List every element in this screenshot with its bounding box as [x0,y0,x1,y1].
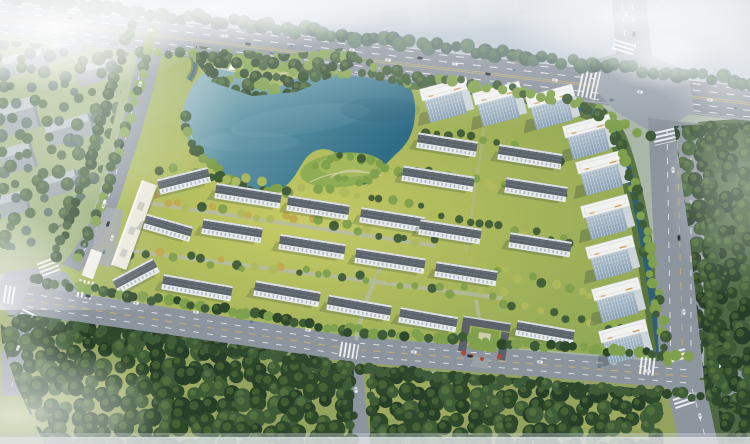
tree-icon [382,164,389,171]
tree-icon [494,221,502,229]
tree-highlight [628,414,634,420]
tree-highlight [231,362,236,367]
tree-icon [481,338,489,346]
tree-icon [237,209,246,218]
tree-icon [696,392,704,400]
tree-highlight [319,383,328,392]
tree-icon [269,265,278,274]
tree-icon [424,334,433,343]
tree-highlight [469,423,474,428]
tree-icon [635,202,644,211]
tree-icon [457,129,465,137]
tree-highlight [621,402,627,408]
tree-icon [266,215,274,223]
tree-highlight [740,420,746,426]
tree-highlight [491,398,499,406]
tree-icon [499,300,508,309]
tree-icon [660,344,668,352]
tree-highlight [338,362,343,367]
tree-icon [631,194,638,201]
tree-highlight [216,362,224,370]
tree-icon [114,328,122,336]
tree-highlight [587,413,593,419]
tree-icon [366,155,375,164]
tree-icon [651,299,659,307]
tree-icon [486,374,495,383]
tree-highlight [435,334,440,339]
tree-highlight [711,308,716,313]
tree-highlight [391,369,396,374]
tree-icon [241,173,250,182]
tree-icon [405,199,414,208]
tree-icon [546,340,556,350]
tree-icon [445,290,454,299]
tree-icon [375,233,382,240]
tree-icon [652,311,659,318]
tree-icon [415,333,425,343]
tree-icon [644,227,653,236]
tree-icon [616,346,626,356]
car [354,387,357,393]
tree-icon [625,349,633,357]
tree-icon [88,327,96,335]
tree-icon [565,284,574,293]
tree-icon [624,173,632,181]
tree-highlight [621,156,626,161]
tree-highlight [618,141,623,146]
tree-icon [502,265,509,272]
tree-highlight [418,412,424,418]
tree-highlight [252,425,257,430]
tree-icon [241,308,252,319]
tree-highlight [713,374,719,380]
car [597,365,603,368]
tree-icon [503,378,511,386]
tree-highlight [706,291,712,297]
tree-highlight [249,411,258,420]
tree-icon [314,323,323,332]
tree-highlight [270,398,279,407]
tree-icon [222,175,231,184]
tree-highlight [596,422,604,430]
tree-highlight [607,422,614,429]
tree-icon [466,257,473,264]
tree-icon [436,283,444,291]
tree-highlight [520,386,526,392]
tree-icon [475,219,483,227]
tree-highlight [368,379,373,384]
tree-highlight [186,368,194,376]
tree-icon [303,266,310,273]
tree-highlight [249,349,254,354]
car-windshield [646,370,648,372]
tree-icon [428,209,437,218]
tree-highlight [732,358,738,364]
tree-highlight [672,351,677,356]
tree-highlight [291,391,297,397]
tree-highlight [452,414,459,421]
tree-icon [182,204,189,211]
tree-highlight [219,400,227,408]
tree-highlight [174,358,180,364]
tree-highlight [201,383,209,391]
tree-highlight [582,397,588,403]
tree-icon [489,182,498,191]
tree-highlight [405,411,413,419]
tree-icon [636,212,645,221]
tree-icon [438,213,445,220]
tree-highlight [294,372,303,381]
tree-icon [322,269,331,278]
tree-highlight [292,426,299,433]
tree-icon [375,195,383,203]
tree-icon [315,271,322,278]
bottom-edge-strip [0,437,750,444]
tree-highlight [305,404,311,410]
tree-icon [263,311,273,321]
tree-highlight [471,412,479,420]
car-windshield [598,366,600,368]
tree-highlight [446,399,453,406]
tree-highlight [338,390,344,396]
tree-highlight [429,410,435,416]
tree-icon [325,184,334,193]
tree-icon [396,283,403,290]
tree-icon [474,338,482,346]
tree-icon [386,276,393,283]
tree-highlight [370,330,375,335]
car-windshield [194,311,196,313]
tree-highlight [491,339,496,344]
tree-icon [568,342,577,351]
tree-icon [458,332,468,342]
car [411,350,417,353]
tree-highlight [529,408,537,416]
tree-highlight [679,388,684,393]
tree-icon [207,261,215,269]
tree-highlight [483,386,488,391]
tree-icon [355,179,363,187]
tree-highlight [196,302,201,307]
tree-icon [552,280,561,289]
tree-icon [273,184,283,194]
tree-icon [98,326,108,336]
tree-icon [304,318,314,328]
tree-highlight [342,400,347,405]
tree-icon [363,277,370,284]
tree-highlight [395,408,402,415]
tree-highlight [162,376,171,385]
tree-icon [727,301,738,312]
tree-icon [376,273,383,280]
tree-icon [345,421,354,430]
tree-highlight [634,399,640,405]
tree-icon [467,219,474,226]
car [467,354,473,357]
tree-icon [250,263,258,271]
tree-icon [231,177,240,186]
tree-icon [683,351,693,361]
tree-icon [197,202,207,212]
tree-highlight [709,334,714,339]
tree-icon [578,315,586,323]
tree-icon [277,263,285,271]
tree-highlight [368,407,373,412]
tree-highlight [432,398,439,405]
tree-highlight [389,426,397,434]
tree-icon [354,192,361,199]
tree-highlight [214,381,222,389]
tree-highlight [516,403,523,410]
tree-icon [218,256,225,263]
tree-highlight [139,352,145,358]
tree-icon [489,293,496,300]
tree-highlight [201,415,209,423]
tree-highlight [731,378,738,385]
tree-highlight [598,384,603,389]
tree-icon [343,381,353,391]
tree-highlight [312,359,317,364]
tree-icon [357,154,366,163]
tree-highlight [636,348,641,353]
tree-highlight [442,374,447,379]
tree-icon [336,152,343,159]
tree-highlight [571,415,578,422]
tree-highlight [531,399,539,407]
tree-highlight [662,332,667,337]
tree-icon [537,307,544,314]
tree-highlight [223,422,232,431]
tree-icon [512,274,522,284]
tree-highlight [264,411,271,418]
tree-highlight [378,380,387,389]
tree-icon [289,214,298,223]
tree-icon [369,396,379,406]
tree-highlight [722,421,728,427]
tree-highlight [173,386,179,392]
tree-icon [297,184,305,192]
tree-icon [399,331,409,341]
tree-icon [312,162,319,169]
tree-highlight [414,389,420,395]
tree-highlight [525,426,532,433]
tree-highlight [342,369,347,374]
tree-icon [329,221,339,231]
tree-highlight [599,402,606,409]
tree-icon [604,384,613,393]
tree-icon [363,363,374,374]
tree-highlight [388,387,393,392]
tree-icon [253,214,260,221]
tree-icon [368,195,374,201]
tree-highlight [724,342,731,349]
tree-highlight [612,399,618,405]
tree-icon [522,337,531,346]
car-windshield [538,361,540,363]
tree-icon [639,220,647,228]
tree-highlight [449,335,454,340]
tree-highlight [269,363,275,369]
tree-icon [282,186,291,195]
tree-highlight [457,401,464,408]
tree-highlight [740,306,746,312]
tree-highlight [289,407,297,415]
tree-icon [343,328,352,337]
tree-highlight [204,370,211,377]
tree-highlight [321,396,327,402]
tree-icon [648,350,656,358]
tree-highlight [401,384,410,393]
tree-icon [208,344,218,354]
tree-highlight [713,326,718,331]
tree-highlight [204,399,212,407]
aerial-rendering [0,0,750,444]
tree-highlight [739,381,746,388]
tree-highlight [237,397,245,405]
tree-icon [530,341,540,351]
car-windshield [699,414,701,417]
tree-highlight [412,423,421,432]
car-windshield [412,351,414,353]
tree-highlight [424,423,432,431]
tree-highlight [496,422,503,429]
tree-highlight [622,423,628,429]
tree-highlight [712,387,717,392]
tree-highlight [307,412,314,419]
tree-highlight [213,305,218,310]
tree-highlight [329,422,338,431]
tree-icon [663,357,672,366]
tree-highlight [237,424,245,432]
car [537,360,543,363]
tree-highlight [560,407,568,415]
tree-icon [623,388,631,396]
tree-highlight [599,414,605,420]
tree-highlight [726,332,731,337]
tree-icon [257,177,267,187]
tree-highlight [256,365,262,371]
tree-highlight [710,368,716,374]
tree-highlight [738,391,745,398]
tree-icon [388,329,396,337]
car-windshield [468,355,470,357]
tree-icon [418,203,424,209]
tree-icon [174,199,181,206]
tree-icon [272,352,282,362]
tree-highlight [442,335,447,340]
tree-highlight [115,341,124,350]
tree-highlight [190,389,196,395]
tree-icon [485,220,493,228]
tree-icon [350,412,358,420]
tree-highlight [277,423,285,431]
tree-icon [573,382,583,392]
tree-icon [558,383,566,391]
tree-icon [659,315,669,325]
tree-highlight [152,349,160,357]
tree-highlight [723,397,728,402]
tree-highlight [263,376,271,384]
tree-icon [591,344,601,354]
tree-icon [153,335,161,343]
tree-highlight [399,367,404,372]
tree-icon [313,184,323,194]
tree-highlight [441,386,450,395]
tree-highlight [558,424,566,432]
tree-highlight [279,376,288,385]
tree-highlight [709,315,714,320]
tree-icon [467,132,475,140]
tree-highlight [535,424,543,432]
car [682,309,685,315]
tree-icon [401,235,407,241]
tree-icon [493,139,500,146]
tree-icon [550,308,558,316]
tree-highlight [472,390,480,398]
car-windshield [250,321,252,323]
tree-icon [533,227,541,235]
tree-highlight [655,387,660,392]
tree-icon [579,288,587,296]
tree-highlight [547,426,555,434]
tree-highlight [708,350,713,355]
tree-icon [356,271,365,280]
tree-icon [362,176,370,184]
tree-icon [614,386,625,397]
tree-icon [521,303,529,311]
tree-icon [354,227,362,235]
tree-icon [688,394,696,402]
tree-icon [507,302,516,311]
tree-highlight [356,365,361,370]
tree-icon [330,324,338,332]
tree-highlight [280,398,289,407]
tree-icon [414,368,424,378]
tree-icon [636,385,646,395]
tree-highlight [543,380,548,385]
tree-highlight [455,386,463,394]
tree-icon [289,318,298,327]
tree-highlight [743,355,749,361]
tree-icon [218,204,227,213]
tree-icon [423,371,433,381]
car-windshield [355,388,357,390]
tree-icon [296,269,302,275]
tree-icon [370,169,380,179]
tree-icon [187,301,195,309]
tree-icon [201,304,210,313]
tree-icon [479,136,487,144]
tree-highlight [333,374,341,382]
fog-cloud [0,30,240,210]
tree-icon [388,195,397,204]
tree-icon [233,348,242,357]
tree-highlight [545,401,551,407]
tree-icon [646,131,657,142]
tree-highlight [305,384,313,392]
tree-highlight [290,355,295,360]
tree-icon [411,282,418,289]
tree-icon [342,175,349,182]
tree-icon [167,335,178,346]
tree-highlight [152,361,160,369]
tree-icon [647,278,658,289]
tree-icon [461,283,468,290]
tree-icon [712,395,723,406]
car-windshield [306,329,308,331]
tree-icon [239,266,245,272]
tree-highlight [317,424,325,432]
